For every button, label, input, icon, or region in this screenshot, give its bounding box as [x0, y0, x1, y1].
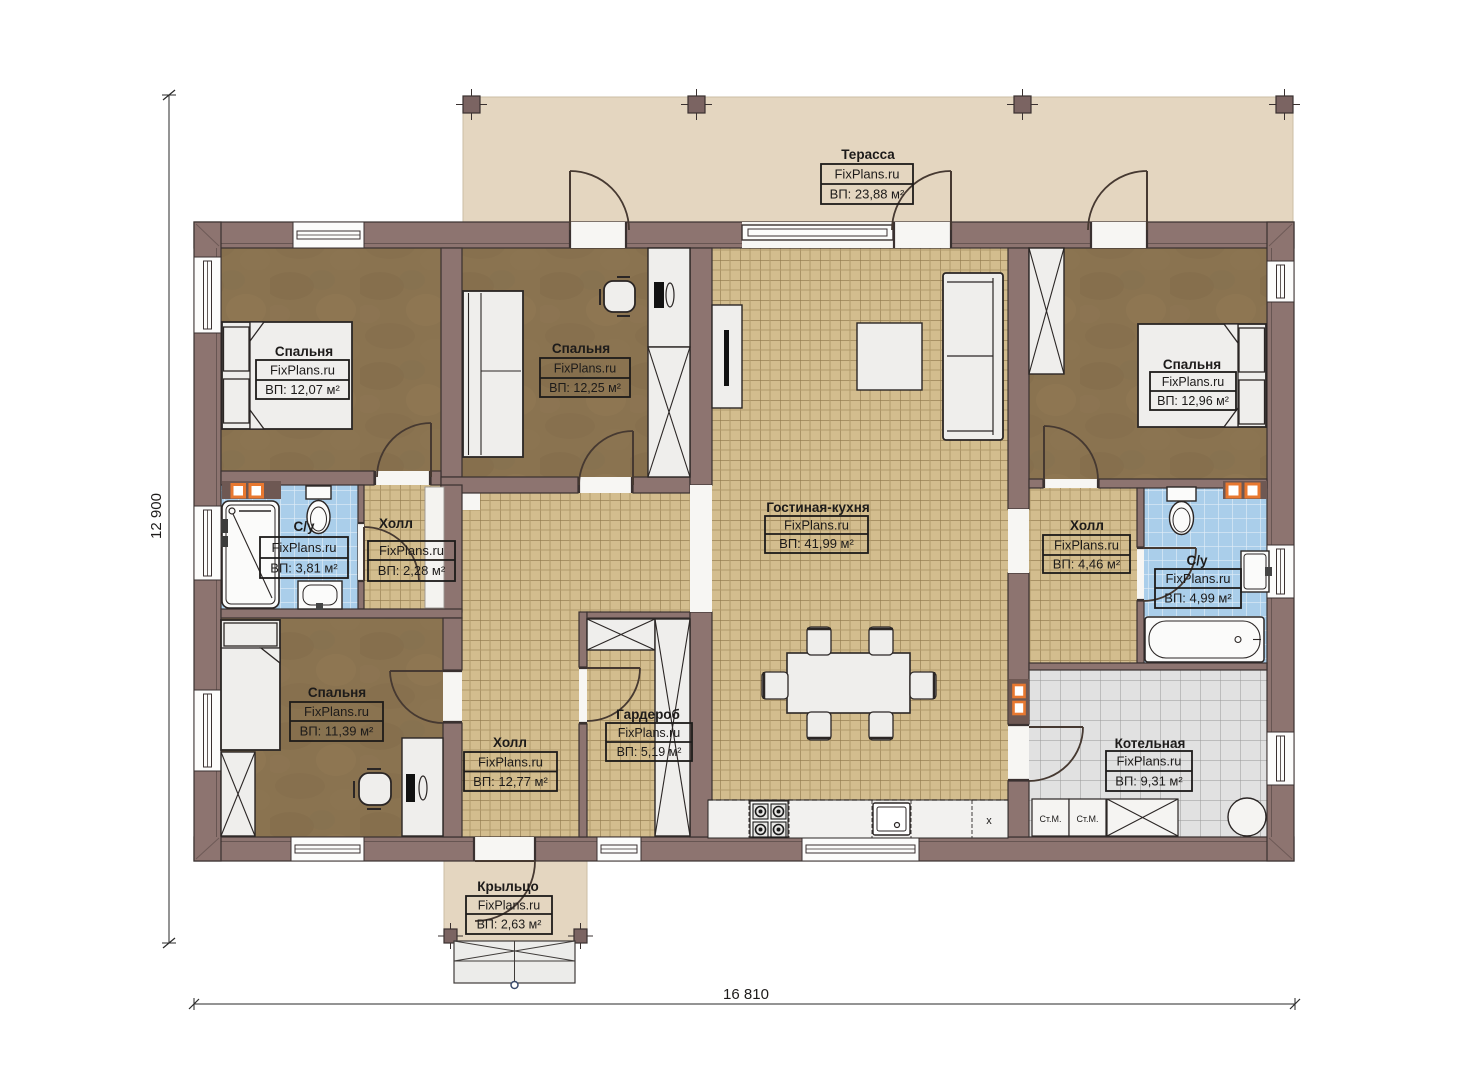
svg-text:ВП: 2,28 м²: ВП: 2,28 м²: [378, 563, 446, 578]
svg-text:ВП: 12,07 м²: ВП: 12,07 м²: [265, 382, 340, 397]
svg-text:Холл: Холл: [493, 735, 527, 750]
svg-text:FixPlans.ru: FixPlans.ru: [1165, 571, 1230, 586]
svg-text:ВП: 4,99 м²: ВП: 4,99 м²: [1164, 591, 1232, 606]
svg-text:FixPlans.ru: FixPlans.ru: [554, 362, 617, 376]
svg-text:Котельная: Котельная: [1115, 736, 1186, 751]
svg-text:FixPlans.ru: FixPlans.ru: [271, 540, 336, 555]
svg-text:FixPlans.ru: FixPlans.ru: [304, 704, 369, 719]
svg-text:FixPlans.ru: FixPlans.ru: [834, 167, 899, 182]
svg-text:ВП: 2,63 м²: ВП: 2,63 м²: [477, 918, 542, 932]
svg-text:Крыльцо: Крыльцо: [477, 879, 538, 894]
svg-text:Холл: Холл: [1070, 518, 1104, 533]
svg-text:Гардероб: Гардероб: [616, 707, 680, 722]
svg-text:FixPlans.ru: FixPlans.ru: [478, 754, 543, 769]
svg-text:16 810: 16 810: [723, 986, 769, 1003]
svg-text:Спальня: Спальня: [275, 344, 333, 359]
svg-text:ВП: 12,25 м²: ВП: 12,25 м²: [549, 381, 621, 395]
svg-text:ВП: 23,88 м²: ВП: 23,88 м²: [830, 187, 905, 202]
svg-text:Холл: Холл: [379, 516, 413, 531]
svg-text:ВП: 11,39 м²: ВП: 11,39 м²: [300, 724, 374, 739]
svg-text:ВП: 4,46 м²: ВП: 4,46 м²: [1053, 557, 1121, 572]
svg-text:ВП: 9,31 м²: ВП: 9,31 м²: [1115, 774, 1183, 789]
svg-text:ВП: 12,77 м²: ВП: 12,77 м²: [473, 774, 548, 789]
svg-text:x: x: [986, 815, 992, 827]
svg-text:FixPlans.ru: FixPlans.ru: [270, 363, 335, 378]
svg-text:С/у: С/у: [293, 519, 315, 534]
svg-text:FixPlans.ru: FixPlans.ru: [478, 899, 541, 913]
svg-text:Терасса: Терасса: [841, 147, 895, 162]
svg-text:12 900: 12 900: [148, 493, 165, 539]
svg-text:ВП: 3,81 м²: ВП: 3,81 м²: [270, 561, 338, 576]
svg-text:Спальня: Спальня: [552, 341, 610, 356]
svg-text:ВП: 41,99 м²: ВП: 41,99 м²: [779, 536, 854, 551]
svg-text:FixPlans.ru: FixPlans.ru: [1054, 538, 1119, 553]
svg-text:Спальня: Спальня: [1163, 357, 1221, 372]
svg-text:С/у: С/у: [1186, 553, 1208, 568]
svg-text:Ст.М.: Ст.М.: [1076, 814, 1098, 824]
svg-text:Спальня: Спальня: [308, 685, 366, 700]
svg-text:FixPlans.ru: FixPlans.ru: [784, 518, 849, 533]
svg-text:FixPlans.ru: FixPlans.ru: [1116, 754, 1181, 769]
svg-text:Гостиная-кухня: Гостиная-кухня: [766, 500, 869, 515]
svg-text:ВП: 12,96 м²: ВП: 12,96 м²: [1157, 394, 1229, 408]
svg-text:FixPlans.ru: FixPlans.ru: [1162, 375, 1225, 389]
svg-text:ВП: 5,19 м²: ВП: 5,19 м²: [617, 745, 682, 759]
svg-text:FixPlans.ru: FixPlans.ru: [618, 726, 681, 740]
svg-text:FixPlans.ru: FixPlans.ru: [379, 543, 444, 558]
svg-text:Ст.М.: Ст.М.: [1039, 814, 1061, 824]
